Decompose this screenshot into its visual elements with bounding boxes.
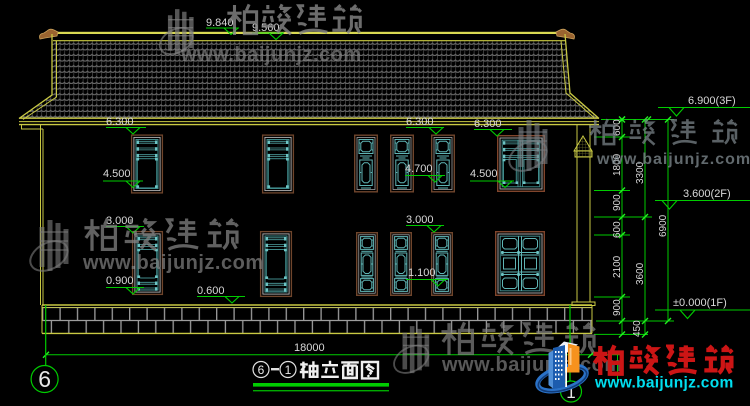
svg-text:6.300: 6.300 [106, 116, 134, 128]
svg-text:6: 6 [258, 363, 265, 377]
svg-text:1.100: 1.100 [408, 267, 436, 279]
svg-text:www.baijunjz.com: www.baijunjz.com [82, 252, 264, 274]
svg-text:0.600: 0.600 [197, 285, 225, 297]
svg-text:3600: 3600 [635, 262, 646, 285]
svg-text:6900: 6900 [658, 214, 669, 237]
svg-text:18000: 18000 [294, 342, 325, 354]
svg-text:4.500: 4.500 [470, 168, 498, 180]
svg-text:0.900: 0.900 [106, 275, 134, 287]
svg-text:www.baijunjz.com: www.baijunjz.com [594, 375, 734, 392]
svg-text:600: 600 [612, 221, 623, 238]
svg-text:6.300: 6.300 [406, 116, 434, 128]
svg-text:±0.000(1F): ±0.000(1F) [673, 297, 727, 309]
svg-text:www.baijunjz.com: www.baijunjz.com [180, 44, 362, 66]
svg-text:2100: 2100 [612, 255, 623, 278]
svg-text:1: 1 [285, 363, 292, 377]
svg-text:4.700: 4.700 [405, 163, 433, 175]
svg-text:4.500: 4.500 [103, 168, 131, 180]
svg-text:900: 900 [612, 299, 623, 316]
svg-text:3.600(2F): 3.600(2F) [683, 188, 731, 200]
svg-text:6.300: 6.300 [474, 118, 502, 130]
svg-text:450: 450 [632, 320, 643, 337]
svg-text:6: 6 [38, 366, 51, 392]
svg-text:www.baijunjz.com: www.baijunjz.com [596, 151, 750, 168]
svg-text:www.baijunjz.com: www.baijunjz.com [441, 354, 623, 376]
svg-text:900: 900 [612, 194, 623, 211]
svg-text:3.000: 3.000 [406, 214, 434, 226]
svg-text:6.900(3F): 6.900(3F) [688, 95, 736, 107]
